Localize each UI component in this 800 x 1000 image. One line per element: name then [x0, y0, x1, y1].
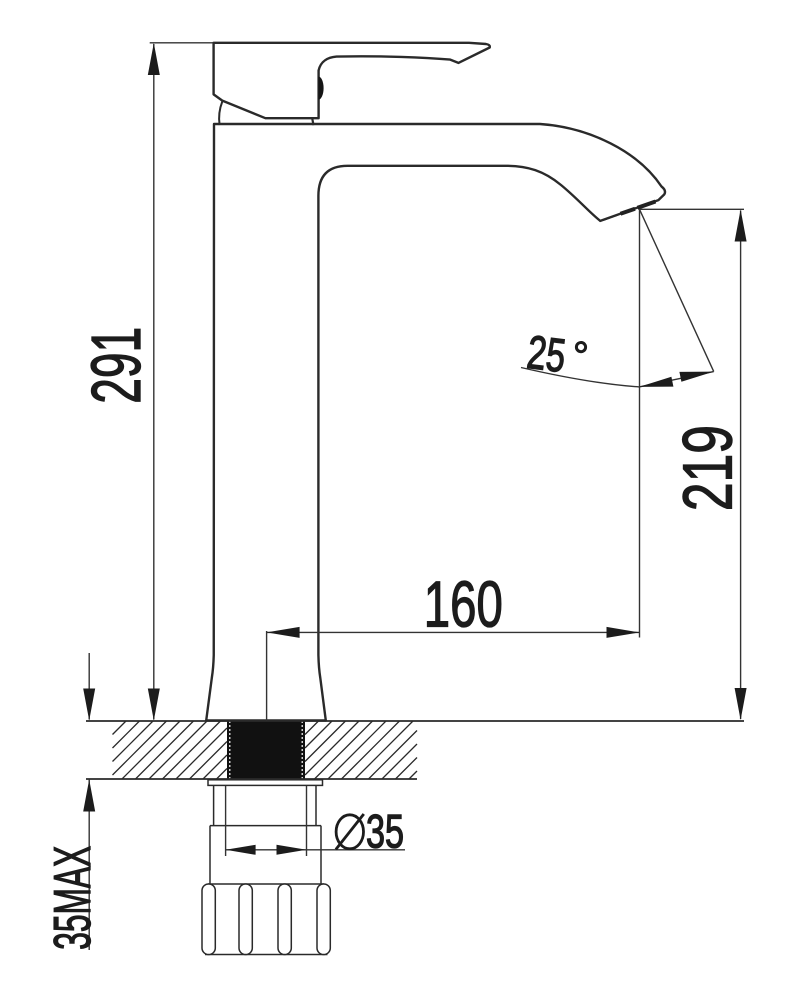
svg-text:160: 160 [424, 567, 503, 640]
svg-text:25: 25 [524, 325, 568, 382]
svg-text:219: 219 [668, 425, 746, 511]
svg-text:291: 291 [77, 327, 155, 404]
svg-text:35: 35 [366, 805, 404, 858]
svg-text:35MAX: 35MAX [44, 846, 102, 950]
